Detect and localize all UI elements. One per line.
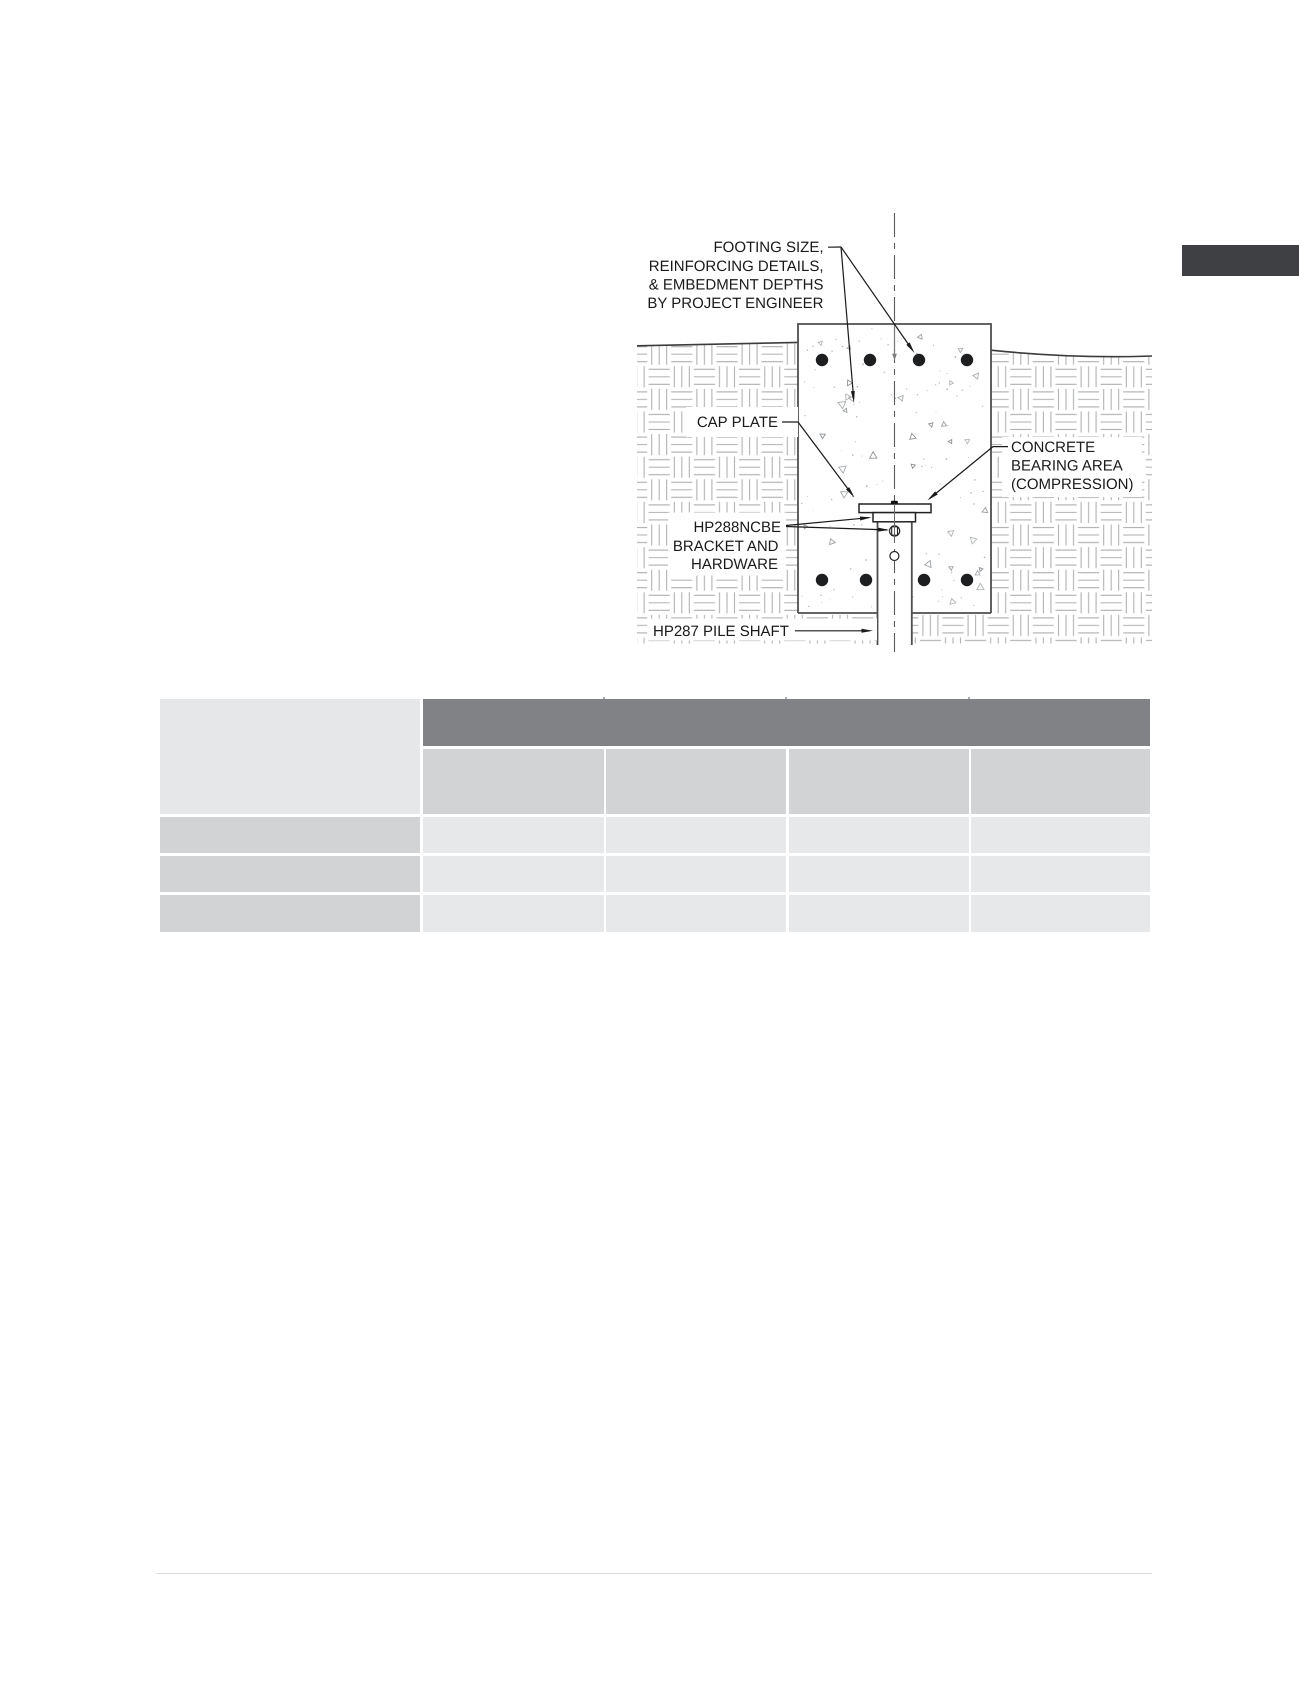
svg-text:& EMBEDMENT DEPTHS: & EMBEDMENT DEPTHS	[649, 276, 824, 293]
svg-text:REINFORCING DETAILS,: REINFORCING DETAILS,	[649, 258, 824, 275]
svg-text:CONCRETE: CONCRETE	[1011, 439, 1095, 456]
svg-text:BRACKET AND: BRACKET AND	[673, 538, 779, 555]
svg-text:(COMPRESSION): (COMPRESSION)	[1011, 476, 1134, 493]
svg-text:HP288NCBE: HP288NCBE	[693, 519, 781, 536]
svg-text:HARDWARE: HARDWARE	[691, 556, 778, 573]
svg-text:HP287 PILE SHAFT: HP287 PILE SHAFT	[653, 623, 789, 640]
svg-text:BEARING AREA: BEARING AREA	[1011, 457, 1123, 474]
svg-text:FOOTING SIZE,: FOOTING SIZE,	[713, 239, 823, 256]
svg-text:CAP PLATE: CAP PLATE	[697, 414, 778, 431]
svg-text:BY PROJECT ENGINEER: BY PROJECT ENGINEER	[647, 295, 823, 312]
